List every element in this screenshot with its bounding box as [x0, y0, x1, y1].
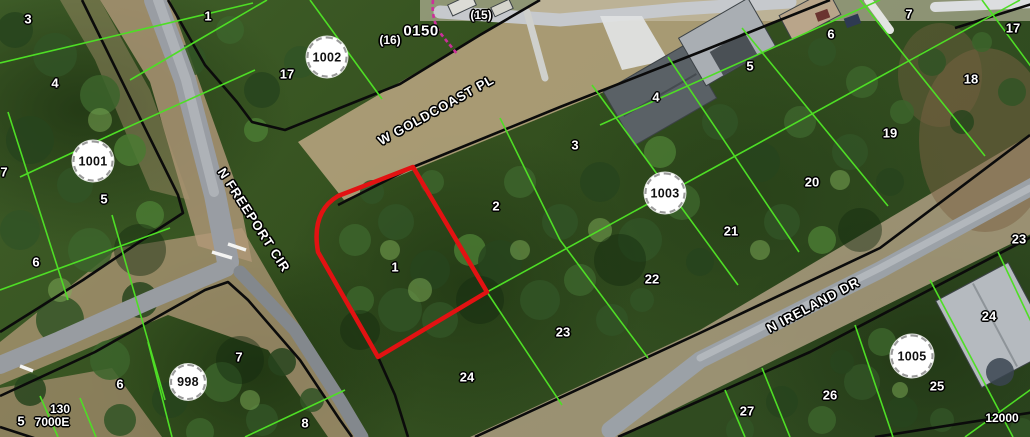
block-number-badge: 1001	[73, 141, 114, 182]
aerial-parcel-map[interactable]: 3475611756781234567242322212019181727262…	[0, 0, 1030, 437]
shadow	[986, 358, 1014, 386]
map-layers	[0, 0, 1030, 437]
block-number-badge: 1003	[645, 173, 686, 214]
block-number-badge: 998	[170, 364, 206, 400]
row-line	[378, 357, 408, 437]
block-number-badge: 1005	[891, 335, 934, 378]
block-number-badge: 1002	[307, 37, 348, 78]
house-roof	[936, 262, 1030, 387]
road-top-right	[935, 3, 1030, 7]
